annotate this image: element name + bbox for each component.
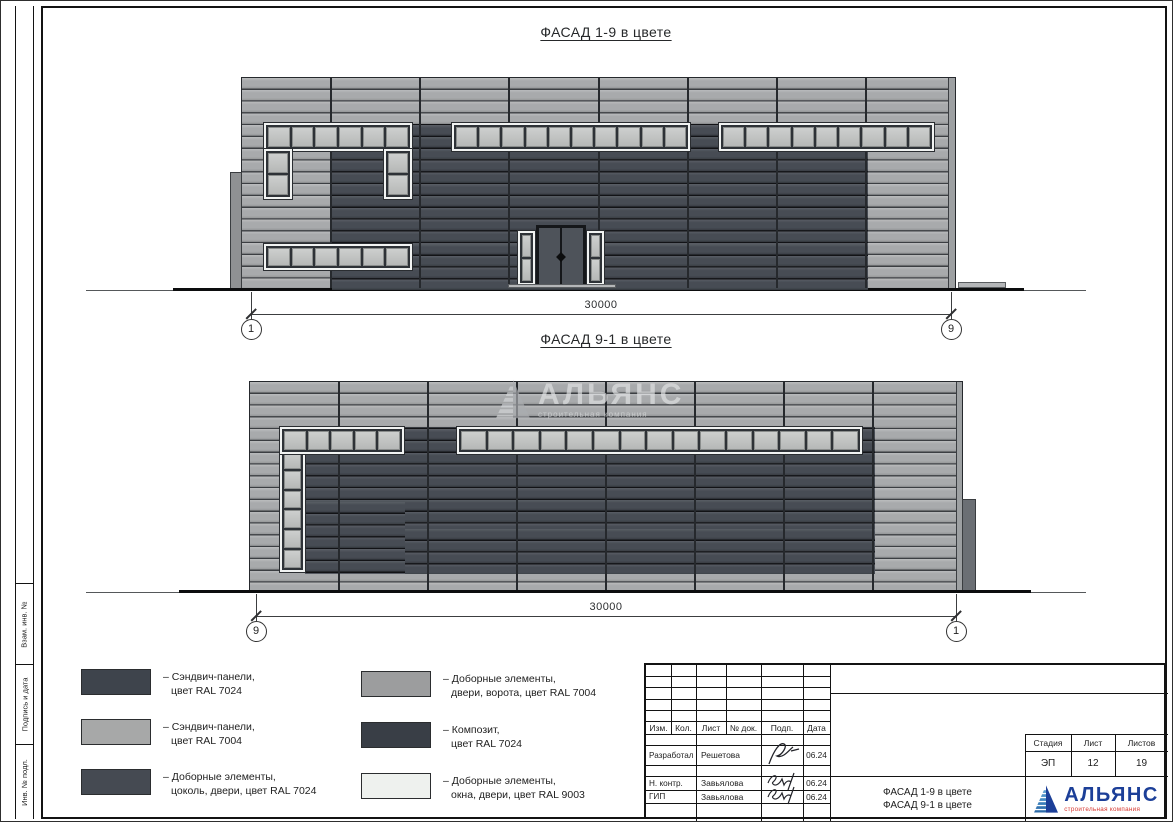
stamp-grid-line <box>761 665 762 821</box>
sheets-total: 19 <box>1115 751 1168 776</box>
stamp-name: Завьялова <box>698 790 760 803</box>
window-column <box>384 149 412 199</box>
window-pane <box>526 127 547 147</box>
window-pane <box>780 431 805 450</box>
logo-subtitle: строительная компания <box>1064 806 1159 813</box>
window-strip <box>264 123 412 151</box>
entrance-door <box>536 225 586 287</box>
door-threshold <box>508 284 616 288</box>
window-pane <box>746 127 767 147</box>
margin-label: Взам. инв. № <box>20 601 29 647</box>
window-pane <box>268 175 288 195</box>
legend-swatch-ral7024 <box>81 669 151 695</box>
extension-line <box>956 594 957 621</box>
window-pane <box>909 127 930 147</box>
window-pane <box>268 153 288 173</box>
legend-item: – Композит,цвет RAL 7024 <box>443 724 653 752</box>
logo-name: АЛЬЯНС <box>1064 785 1159 805</box>
facade-1-9-title: ФАСАД 1-9 в цвете <box>421 24 791 40</box>
dimension-line <box>256 616 956 617</box>
axis-marker-9: 9 <box>246 621 267 642</box>
window-pane <box>378 431 400 450</box>
window-pane <box>522 235 531 257</box>
legend-swatch-ral7004 <box>81 719 151 745</box>
legend-swatch-trim-ral7024 <box>81 769 151 795</box>
window-pane <box>594 431 619 450</box>
legend-swatch-ral9003 <box>361 773 431 799</box>
stamp-role: Н. контр. <box>646 776 696 790</box>
window-pane <box>388 175 408 195</box>
stamp-header-data: Дата <box>803 721 830 734</box>
panel-seam <box>783 382 785 590</box>
window-pane <box>363 248 385 266</box>
window-pane <box>793 127 814 147</box>
panel-seam <box>427 382 429 590</box>
legend-item: – Доборные элементы,окна, двери, цвет RA… <box>443 775 653 803</box>
window-pane <box>572 127 593 147</box>
window-pane <box>862 127 883 147</box>
window-pane <box>642 127 663 147</box>
panel-seam <box>872 382 874 590</box>
window-pane <box>618 127 639 147</box>
window-pane <box>549 127 570 147</box>
stamp-name: Решетова <box>698 745 760 765</box>
window-pane <box>727 431 752 450</box>
window-pane <box>284 431 306 450</box>
door-sidelight <box>518 231 535 285</box>
dimension-label: 30000 <box>506 601 706 613</box>
company-watermark: АЛЬЯНС строительная компания <box>496 378 684 420</box>
window-pane <box>674 431 699 450</box>
ground-line-thick <box>179 590 1031 594</box>
door-handle-icon <box>556 252 566 262</box>
window-pane <box>541 431 566 450</box>
facade-9-1-title: ФАСАД 9-1 в цвете <box>421 331 791 347</box>
window-pane <box>284 510 301 528</box>
margin-label: Подпись и дата <box>20 678 29 732</box>
stamp-name: Завьялова <box>698 776 760 790</box>
window-pane <box>591 235 600 257</box>
pyramid-logo-icon <box>496 378 530 420</box>
stage-header: Стадия <box>1025 734 1071 751</box>
window-pane <box>816 127 837 147</box>
window-pane <box>268 127 290 147</box>
right-corner-trim <box>956 382 962 590</box>
watermark-subtitle: строительная компания <box>538 410 684 419</box>
facade-1-9-drawing <box>241 77 956 289</box>
window-pane <box>284 491 301 509</box>
panel-seam <box>776 78 778 288</box>
extension-line <box>951 292 952 319</box>
stamp-doc-title: ФАСАД 1-9 в цвете ФАСАД 9-1 в цвете <box>830 776 1025 821</box>
stamp-header-kol: Кол. <box>671 721 696 734</box>
window-pane <box>363 127 385 147</box>
legend-item: – Доборные элементы,двери, ворота, цвет … <box>443 673 653 701</box>
window-pane <box>456 127 477 147</box>
window-column <box>264 149 292 199</box>
window-strip <box>452 123 690 151</box>
window-pane <box>488 431 513 450</box>
door-sidelight <box>587 231 604 285</box>
stamp-header-ndok: № док. <box>726 721 761 734</box>
window-pane <box>386 127 408 147</box>
stamp-date: 06.24 <box>803 790 830 803</box>
stamp-date: 06.24 <box>803 776 830 790</box>
window-strip <box>280 427 404 454</box>
stamp-header-izm: Изм. <box>646 721 671 734</box>
panel-seam <box>687 78 689 288</box>
legend-item: – Сэндвич-панели,цвет RAL 7024 <box>163 671 373 699</box>
window-pane <box>284 530 301 548</box>
margin-label: Инв. № подл. <box>20 759 29 806</box>
sheet-header: Лист <box>1071 734 1115 751</box>
stamp-header-podp: Подп. <box>761 721 803 734</box>
window-pane <box>839 127 860 147</box>
stamp-grid-line <box>696 665 697 821</box>
ground-step <box>958 282 1006 288</box>
window-pane <box>284 550 301 568</box>
stamp-grid-line <box>830 693 1168 694</box>
axis-marker-1: 1 <box>241 319 262 340</box>
window-pane <box>769 127 790 147</box>
left-margin-rail: Взам. инв. № Подпись и дата Инв. № подл. <box>15 6 34 819</box>
window-pane <box>388 153 408 173</box>
window-pane <box>292 127 314 147</box>
margin-cell: Инв. № подл. <box>16 744 33 819</box>
window-strip <box>457 427 862 454</box>
panel-seam <box>865 78 867 288</box>
window-pane <box>331 431 353 450</box>
panel-seam <box>508 78 510 288</box>
stamp-role: ГИП <box>646 790 696 803</box>
stamp-role: Разработал <box>646 745 696 765</box>
right-corner-trim <box>948 78 955 288</box>
window-pane <box>522 259 531 281</box>
window-pane <box>665 127 686 147</box>
window-pane <box>700 431 725 450</box>
company-logo: АЛЬЯНС строительная компания <box>1025 776 1168 821</box>
window-pane <box>315 248 337 266</box>
axis-marker-9: 9 <box>941 319 962 340</box>
window-pane <box>479 127 500 147</box>
window-pane <box>308 431 330 450</box>
window-pane <box>268 248 290 266</box>
window-pane <box>591 259 600 281</box>
window-pane <box>355 431 377 450</box>
window-pane <box>292 248 314 266</box>
title-block: Изм. Кол. Лист № док. Подп. Дата Разрабо… <box>644 663 1166 819</box>
sheets-header: Листов <box>1115 734 1168 751</box>
panel-seam <box>419 78 421 288</box>
stamp-date: 06.24 <box>803 745 830 765</box>
stamp-header-list: Лист <box>696 721 726 734</box>
legend-item: – Сэндвич-панели,цвет RAL 7004 <box>163 721 373 749</box>
signature <box>765 785 799 807</box>
axis-marker-1: 1 <box>946 621 967 642</box>
right-annex-trim <box>962 499 976 592</box>
window-pane <box>754 431 779 450</box>
window-pane <box>595 127 616 147</box>
stage-value: ЭП <box>1025 751 1071 776</box>
window-pane <box>514 431 539 450</box>
pyramid-logo-icon <box>1034 784 1058 814</box>
left-corner-trim <box>230 172 242 290</box>
watermark-name: АЛЬЯНС <box>538 380 684 410</box>
panel-seam <box>694 382 696 590</box>
window-pane <box>339 127 361 147</box>
window-pane <box>833 431 858 450</box>
sheet-number: 12 <box>1071 751 1115 776</box>
window-pane <box>647 431 672 450</box>
window-strip <box>719 123 934 151</box>
window-pane <box>386 248 408 266</box>
legend-swatch-trim-ral7004 <box>361 671 431 697</box>
legend-item: – Доборные элементы,цоколь, двери, цвет … <box>163 771 373 799</box>
window-strip <box>264 244 412 270</box>
window-pane <box>807 431 832 450</box>
window-pane <box>723 127 744 147</box>
margin-cell: Подпись и дата <box>16 664 33 744</box>
legend-swatch-composite <box>361 722 431 748</box>
window-pane <box>567 431 592 450</box>
window-pane <box>315 127 337 147</box>
window-pane <box>461 431 486 450</box>
dimension-label: 30000 <box>501 299 701 311</box>
window-pane <box>886 127 907 147</box>
drawing-sheet: Взам. инв. № Подпись и дата Инв. № подл.… <box>0 0 1173 822</box>
signature <box>763 740 801 770</box>
window-pane <box>621 431 646 450</box>
dimension-line <box>251 314 951 315</box>
window-pane <box>502 127 523 147</box>
margin-cell: Взам. инв. № <box>16 583 33 664</box>
panel-seam <box>338 382 340 590</box>
window-pane <box>284 471 301 489</box>
window-pane <box>339 248 361 266</box>
